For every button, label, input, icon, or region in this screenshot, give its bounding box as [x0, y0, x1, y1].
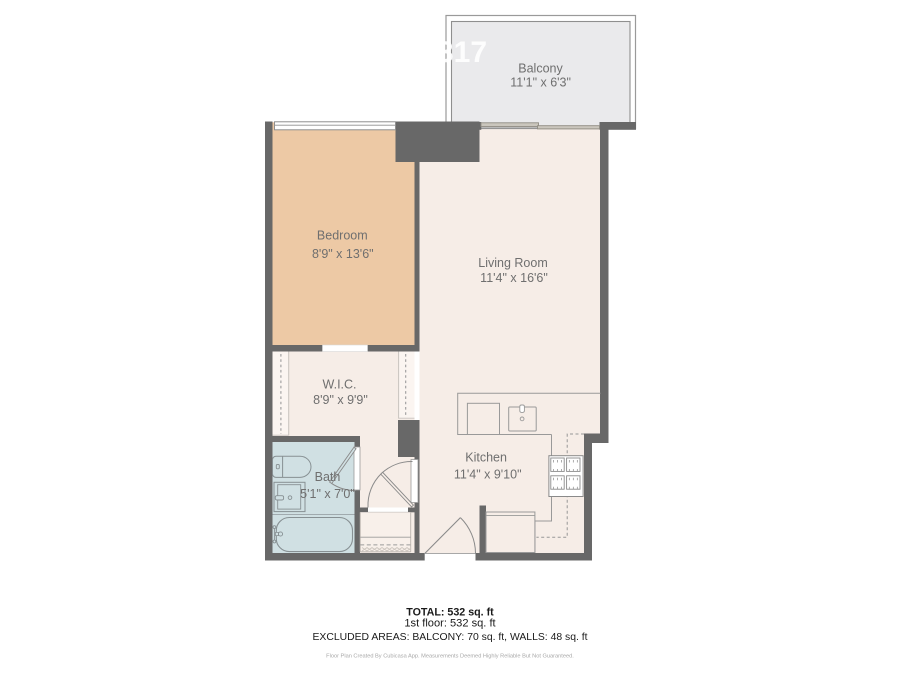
- svg-text:Kitchen: Kitchen: [465, 450, 507, 464]
- svg-text:5'1" x 7'0": 5'1" x 7'0": [300, 487, 355, 501]
- svg-text:Living Room: Living Room: [478, 256, 547, 270]
- svg-text:317: 317: [437, 36, 487, 69]
- svg-text:11'4" x 9'10": 11'4" x 9'10": [454, 468, 522, 482]
- svg-text:Balcony: Balcony: [518, 61, 563, 75]
- svg-text:11'4" x 16'6": 11'4" x 16'6": [480, 271, 548, 285]
- svg-text:EXCLUDED AREAS: BALCONY: 70 sq: EXCLUDED AREAS: BALCONY: 70 sq. ft, WALL…: [312, 632, 587, 643]
- svg-text:W.I.C.: W.I.C.: [322, 377, 356, 391]
- svg-text:Bedroom: Bedroom: [317, 229, 368, 243]
- svg-text:Bath: Bath: [315, 470, 341, 484]
- svg-text:8'9" x 13'6": 8'9" x 13'6": [312, 247, 374, 261]
- svg-text:11'1" x 6'3": 11'1" x 6'3": [510, 76, 571, 90]
- svg-text:TOTAL: 532 sq. ft: TOTAL: 532 sq. ft: [406, 606, 494, 618]
- svg-text:8'9" x 9'9": 8'9" x 9'9": [313, 393, 368, 407]
- svg-text:Floor Plan Created By Cubicasa: Floor Plan Created By Cubicasa App. Meas…: [326, 654, 574, 660]
- svg-text:1st floor: 532 sq. ft: 1st floor: 532 sq. ft: [404, 618, 495, 630]
